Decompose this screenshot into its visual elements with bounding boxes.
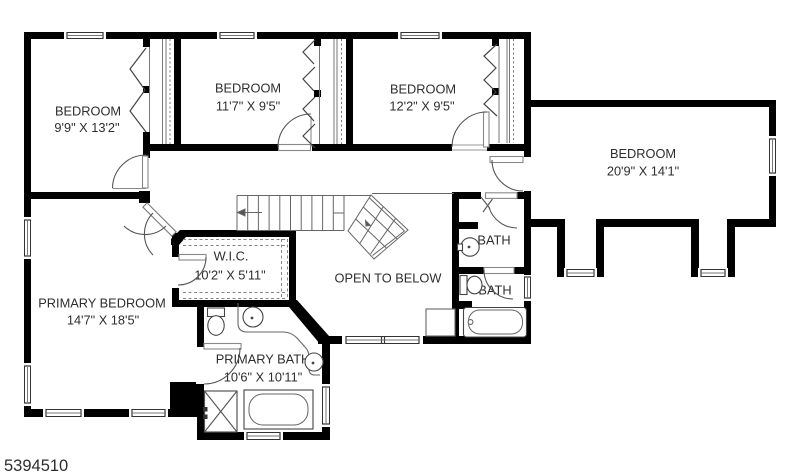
svg-text:5394510: 5394510 — [4, 457, 68, 475]
svg-text:11'7" X 9'5": 11'7" X 9'5" — [216, 99, 280, 114]
svg-text:BEDROOM: BEDROOM — [215, 81, 281, 96]
svg-text:PRIMARY BEDROOM: PRIMARY BEDROOM — [38, 296, 166, 311]
svg-text:BATH: BATH — [478, 283, 511, 298]
svg-text:BEDROOM: BEDROOM — [390, 82, 456, 97]
svg-text:20'9" X 14'1": 20'9" X 14'1" — [607, 164, 679, 179]
svg-text:9'9" X 13'2": 9'9" X 13'2" — [54, 120, 119, 135]
svg-text:W.I.C.: W.I.C. — [214, 249, 249, 264]
svg-text:BEDROOM: BEDROOM — [55, 104, 121, 119]
svg-text:10'6" X 10'11": 10'6" X 10'11" — [224, 370, 303, 385]
svg-text:OPEN TO BELOW: OPEN TO BELOW — [335, 271, 443, 286]
svg-text:BEDROOM: BEDROOM — [610, 146, 676, 161]
svg-text:14'7" X 18'5": 14'7" X 18'5" — [67, 313, 139, 328]
svg-text:12'2" X 9'5": 12'2" X 9'5" — [389, 99, 454, 114]
svg-text:BATH: BATH — [477, 233, 510, 248]
svg-text:10'2" X 5'11": 10'2" X 5'11" — [194, 268, 265, 283]
svg-text:PRIMARY BATH: PRIMARY BATH — [216, 352, 311, 367]
